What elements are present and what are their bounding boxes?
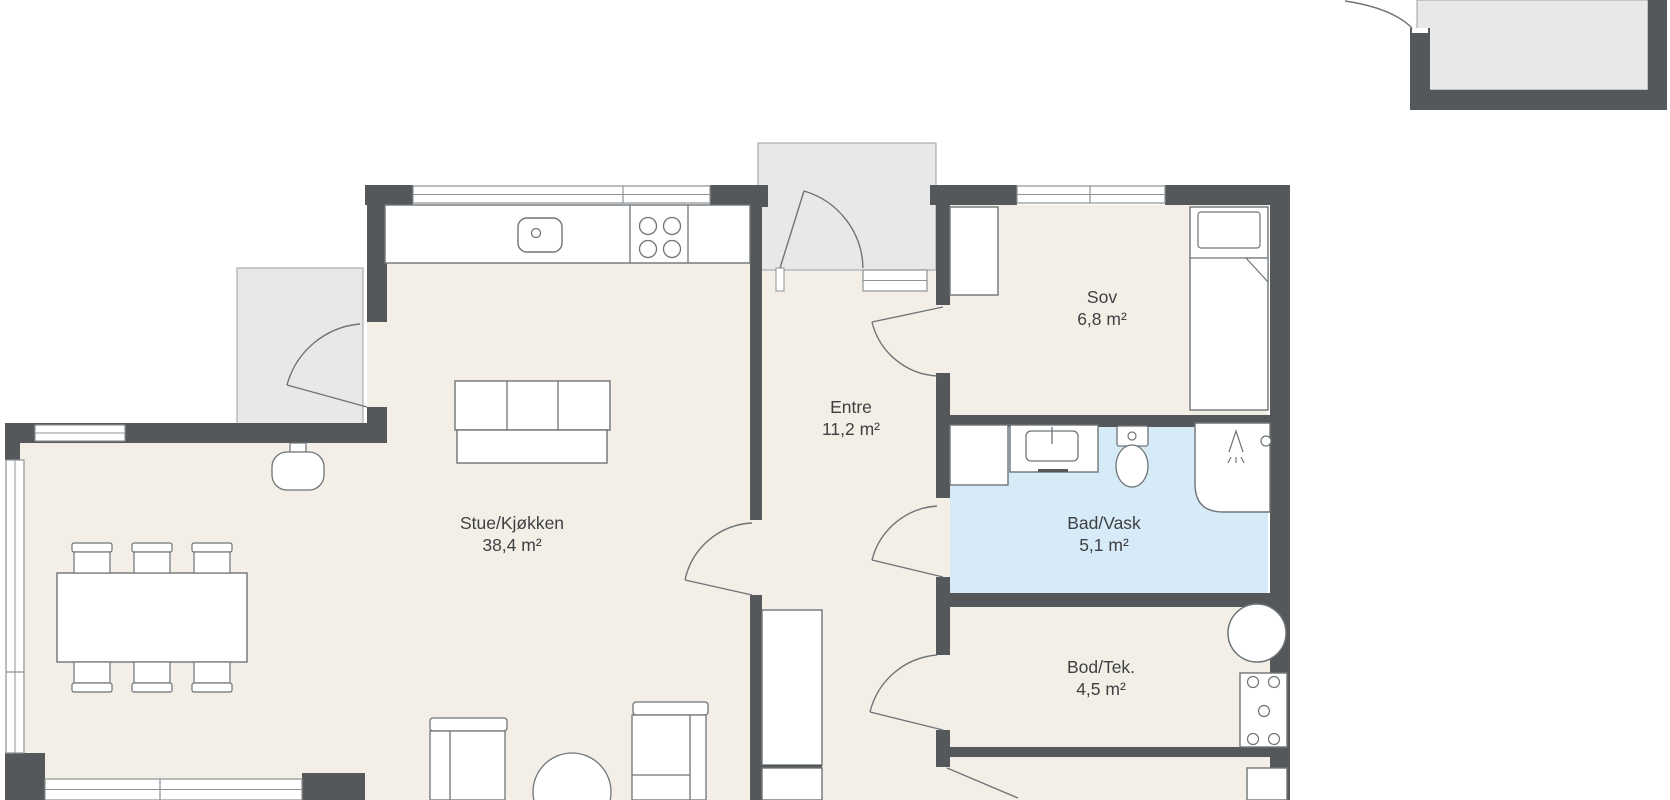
room-name: Sov [1077,286,1127,308]
armchair-body [632,715,706,800]
room-area: 11,2 m² [822,418,880,440]
wall-bod-bottom [950,747,1290,757]
armchair-body [430,731,505,800]
wall-south-block [302,773,365,800]
bottom-room-fixture [1247,768,1287,800]
room-label-bod-tek: Bod/Tek. 4,5 m² [1067,656,1135,700]
panel-knob [1248,734,1259,745]
chair-seat [74,552,110,573]
room-name: Entre [822,396,880,418]
room-label-entre: Entre 11,2 m² [822,396,880,440]
floor-opening-terrace-door [367,322,387,407]
wall-entre-east-4 [936,730,950,767]
toilet-button [1128,432,1136,440]
wall-bad-bod [950,593,1270,607]
armchair-back [430,718,507,731]
stove-burner [664,241,681,258]
room-area: 4,5 m² [1067,678,1135,700]
water-heater [1228,604,1286,662]
room-area: 6,8 m² [1077,308,1127,330]
chair-back [132,683,172,692]
sov-wardrobe [950,207,998,295]
stove-burner [640,218,657,235]
wall-terrace-tr-right [1648,0,1667,110]
panel-knob [1259,706,1270,717]
dining-table [57,573,247,662]
stove-burner [664,218,681,235]
chair-back [192,543,232,552]
front-door-sill [776,268,784,291]
toilet-bowl [1116,445,1148,487]
room-label-stue-kjokken: Stue/Kjøkken 38,4 m² [460,512,564,556]
room-area: 5,1 m² [1067,534,1141,556]
panel-knob [1269,677,1280,688]
terrace-top-right [1417,0,1648,90]
wall-entre-east-1 [936,185,950,305]
bathroom-counter-edge [1038,469,1068,472]
room-label-sov: Sov 6,8 m² [1077,286,1127,330]
wall-terrace-tr-bottom [1410,90,1667,110]
kitchen-faucet [532,229,541,238]
panel-knob [1269,734,1280,745]
chair-seat [134,662,170,683]
terrace-tr-threshold [1412,28,1428,33]
armchair-back [633,702,708,715]
kitchen-counter [385,205,750,263]
wall-west-kitchen-upper [367,185,387,322]
wall-top-porch-left [710,185,768,207]
entre-cabinet-tall [762,610,822,765]
chair-seat [194,662,230,683]
room-label-bad-vask: Bad/Vask 5,1 m² [1067,512,1141,556]
shower-tray [1195,423,1270,512]
wall-entre-west-lower [750,595,762,800]
chair-seat [194,552,230,573]
entre-cabinet-lower [762,768,822,800]
wall-entre-west-upper [750,207,762,520]
stove-burner [640,241,657,258]
door-terrace-top-right-arc [1345,1,1412,28]
floor-plan-canvas: Stue/Kjøkken 38,4 m² Entre 11,2 m² Sov 6… [0,0,1670,800]
room-name: Bad/Vask [1067,512,1141,534]
chair-back [72,683,112,692]
floor-bottom-room [936,757,1270,800]
bed-pillow [1198,212,1260,248]
room-name: Bod/Tek. [1067,656,1135,678]
room-area: 38,4 m² [460,534,564,556]
pendant-lamp-mount [290,443,306,452]
pendant-lamp [272,452,324,490]
sofa-back [455,381,610,430]
sofa-seat [457,430,607,463]
terrace-left [237,268,363,425]
room-name: Stue/Kjøkken [460,512,564,534]
shower-drain [1261,436,1271,446]
chair-seat [134,552,170,573]
wall-entre-east-3 [936,577,950,655]
wall-entre-east-2 [936,373,950,498]
wall-west-corner-top [5,423,20,460]
chair-seat [74,662,110,683]
washing-machine [950,425,1008,485]
chair-back [72,543,112,552]
wall-west-corner-bottom [5,753,45,800]
chair-back [192,683,232,692]
chair-back [132,543,172,552]
floor-opening-stue-entre [750,520,762,595]
panel-knob [1248,677,1259,688]
